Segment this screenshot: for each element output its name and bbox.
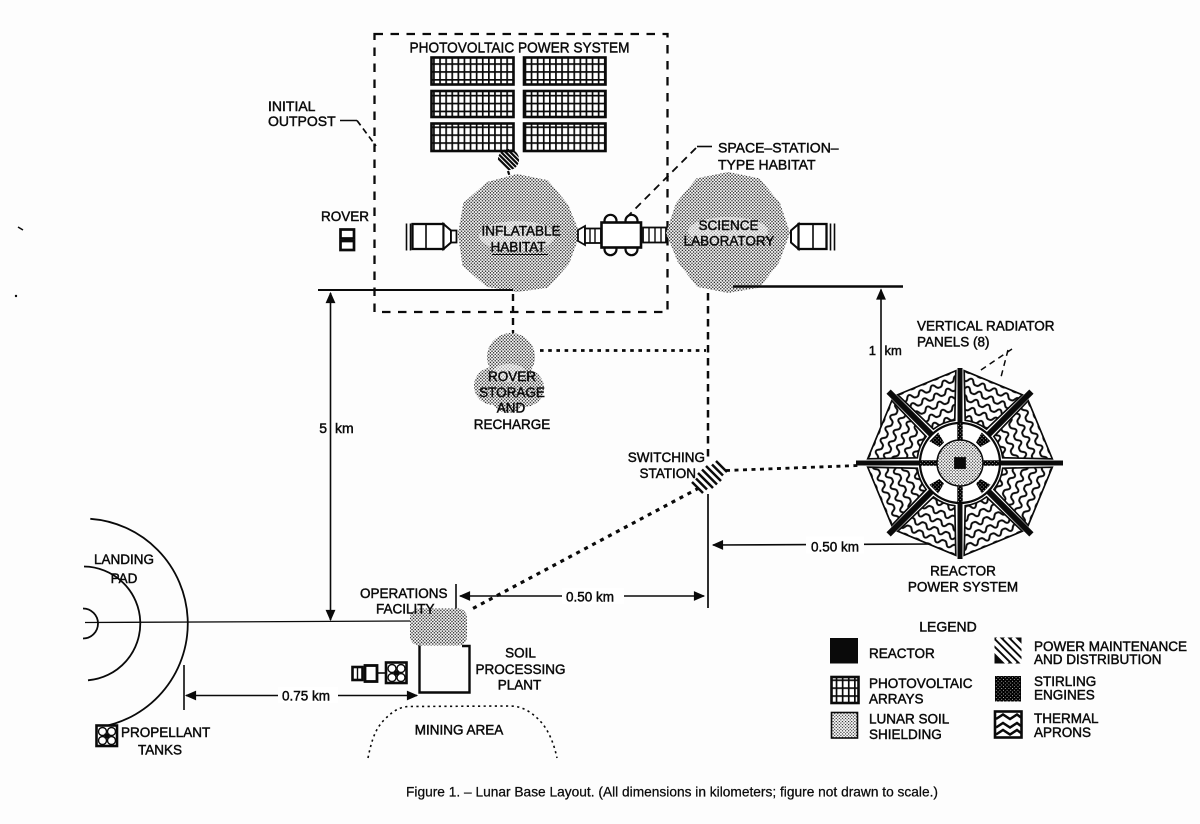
svg-text:LEGEND: LEGEND — [919, 619, 977, 635]
svg-text:0.50 km: 0.50 km — [566, 590, 614, 605]
svg-text:SOIL: SOIL — [505, 646, 536, 661]
svg-text:PROCESSING: PROCESSING — [475, 662, 565, 677]
svg-text:SWITCHING: SWITCHING — [628, 450, 705, 465]
svg-text:1: 1 — [869, 343, 876, 358]
svg-text:LUNAR SOIL: LUNAR SOIL — [869, 712, 950, 727]
svg-text:OPERATIONS: OPERATIONS — [360, 586, 448, 601]
svg-text:ROVER: ROVER — [488, 369, 536, 384]
svg-text:MINING AREA: MINING AREA — [415, 723, 504, 738]
svg-text:km: km — [335, 420, 354, 436]
svg-text:LABORATORY: LABORATORY — [684, 234, 775, 249]
svg-text:ENGINES: ENGINES — [1034, 688, 1095, 703]
svg-text:TYPE HABITAT: TYPE HABITAT — [718, 157, 816, 173]
svg-text:PANELS (8): PANELS (8) — [917, 335, 990, 350]
svg-text:INFLATABLE: INFLATABLE — [481, 224, 560, 239]
svg-text:FACILITY: FACILITY — [376, 602, 435, 617]
svg-text:SPACE–STATION–: SPACE–STATION– — [718, 140, 839, 156]
svg-text:AND DISTRIBUTION: AND DISTRIBUTION — [1034, 652, 1162, 667]
svg-text:PLANT: PLANT — [498, 678, 542, 693]
svg-text:RECHARGE: RECHARGE — [474, 417, 551, 432]
svg-text:ARRAYS: ARRAYS — [869, 692, 924, 707]
svg-text:TANKS: TANKS — [138, 743, 182, 758]
svg-text:LANDING: LANDING — [94, 552, 154, 567]
svg-text:REACTOR: REACTOR — [869, 646, 935, 661]
svg-text:STATION: STATION — [640, 466, 697, 481]
svg-text:5: 5 — [319, 420, 327, 436]
svg-text:0.50 km: 0.50 km — [811, 540, 859, 555]
svg-text:SCIENCE: SCIENCE — [698, 218, 758, 233]
svg-text:APRONS: APRONS — [1034, 725, 1091, 740]
svg-text:POWER SYSTEM: POWER SYSTEM — [908, 580, 1018, 595]
svg-text:HABITAT: HABITAT — [490, 240, 545, 255]
svg-text:OUTPOST: OUTPOST — [268, 113, 336, 129]
svg-text:INITIAL: INITIAL — [268, 98, 316, 114]
svg-text:PHOTOVOLTAIC: PHOTOVOLTAIC — [869, 676, 973, 691]
svg-text:PAD: PAD — [111, 571, 138, 586]
svg-text:PHOTOVOLTAIC POWER SYSTEM: PHOTOVOLTAIC POWER SYSTEM — [410, 40, 630, 57]
svg-text:PROPELLANT: PROPELLANT — [121, 725, 210, 740]
svg-text:THERMAL: THERMAL — [1034, 711, 1099, 726]
svg-text:AND: AND — [497, 401, 526, 416]
svg-text:VERTICAL RADIATOR: VERTICAL RADIATOR — [917, 319, 1055, 334]
svg-text:0.75 km: 0.75 km — [282, 689, 330, 704]
svg-text:ROVER: ROVER — [321, 209, 369, 224]
svg-text:REACTOR: REACTOR — [930, 564, 996, 579]
svg-text:Figure 1. – Lunar Base Layout.: Figure 1. – Lunar Base Layout. (All dime… — [406, 785, 938, 800]
svg-text:SHIELDING: SHIELDING — [869, 727, 942, 742]
svg-text:km: km — [885, 343, 902, 358]
svg-text:STORAGE: STORAGE — [479, 385, 545, 400]
